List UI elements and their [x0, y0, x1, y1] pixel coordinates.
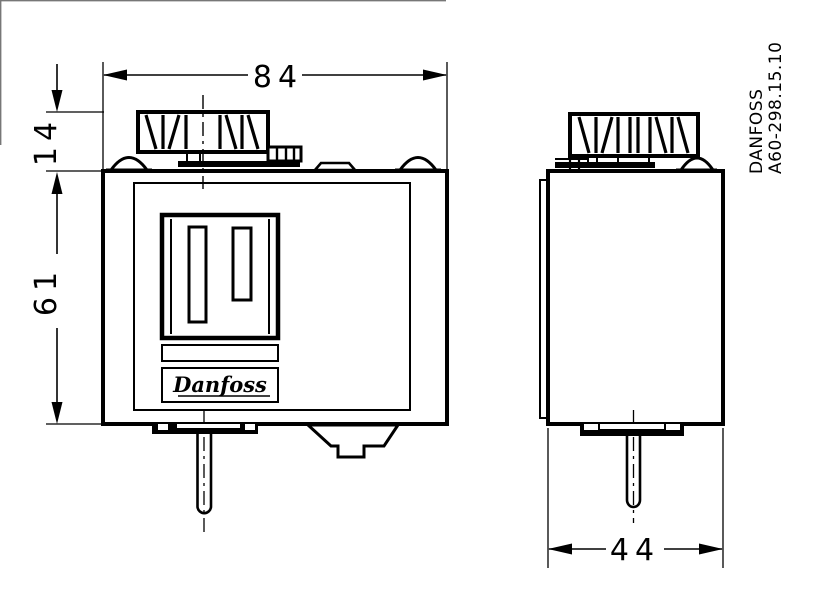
arrow-left-icon	[103, 70, 127, 81]
drawing-number-label: A60-298.15.10	[766, 42, 786, 174]
front-top-screw-left	[106, 158, 152, 171]
side-knob	[570, 114, 698, 156]
side-case-outline	[548, 171, 723, 424]
arrow-right-icon	[699, 544, 723, 555]
front-cable-entry	[308, 425, 398, 457]
arrow-up-icon	[52, 172, 63, 194]
front-bottom-bracket	[152, 424, 258, 434]
dimension-body-height: 61	[29, 172, 104, 424]
brand-label: DANFOSS	[747, 89, 767, 174]
danfoss-script-logo: Danfoss	[172, 372, 267, 397]
front-slot-right	[233, 228, 251, 300]
front-label-strip	[162, 345, 278, 361]
front-terminal-window	[162, 215, 278, 338]
dim-depth-label: 44	[610, 533, 660, 568]
front-slot-left	[189, 227, 206, 322]
title-block: DANFOSS A60-298.15.10	[747, 42, 786, 174]
dim-knob-height-label: 14	[29, 116, 64, 166]
front-view: Danfoss	[103, 95, 447, 537]
side-top-screw	[676, 158, 717, 170]
arrow-down-icon	[52, 402, 63, 424]
dimension-drawing: Danfoss	[0, 0, 818, 600]
dimension-knob-height: 14	[29, 64, 104, 171]
side-view	[540, 114, 723, 523]
dim-body-height-label: 61	[29, 266, 64, 316]
front-top-dish	[315, 163, 355, 170]
front-ribbed-block	[268, 147, 301, 161]
dim-overall-width-label: 84	[253, 60, 303, 95]
side-bottom-bracket	[580, 424, 684, 436]
front-top-screw-right	[395, 158, 441, 171]
drawing-page: Danfoss	[0, 0, 818, 600]
arrow-down-icon	[52, 90, 63, 112]
front-logo-plate: Danfoss	[162, 368, 278, 402]
arrow-left-icon	[548, 544, 572, 555]
arrow-right-icon	[423, 70, 447, 81]
